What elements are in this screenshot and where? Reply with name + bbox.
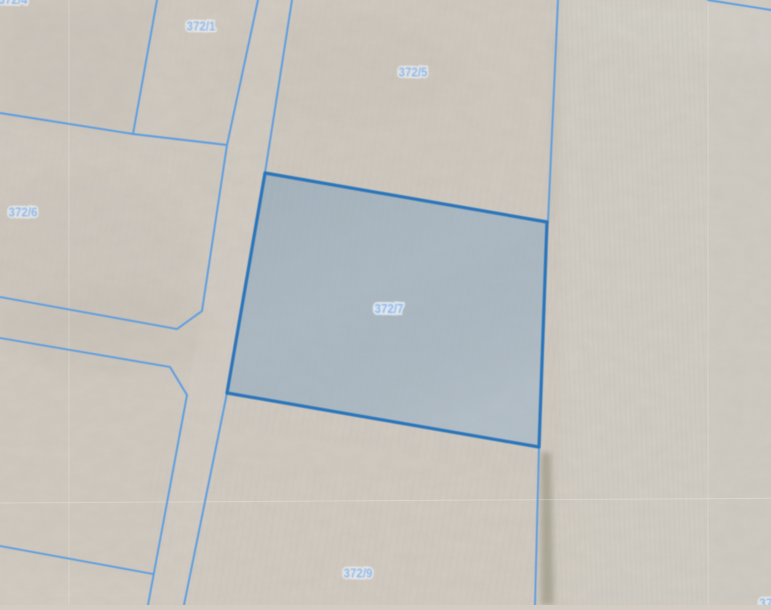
svg-text:372/7: 372/7: [375, 302, 404, 316]
svg-text:372/1: 372/1: [187, 20, 216, 34]
svg-text:372/9: 372/9: [344, 567, 373, 581]
svg-text:372/5: 372/5: [399, 66, 428, 80]
svg-text:372/4: 372/4: [0, 0, 28, 7]
svg-text:372/6: 372/6: [9, 206, 38, 220]
svg-text:372/8: 372/8: [759, 597, 771, 606]
